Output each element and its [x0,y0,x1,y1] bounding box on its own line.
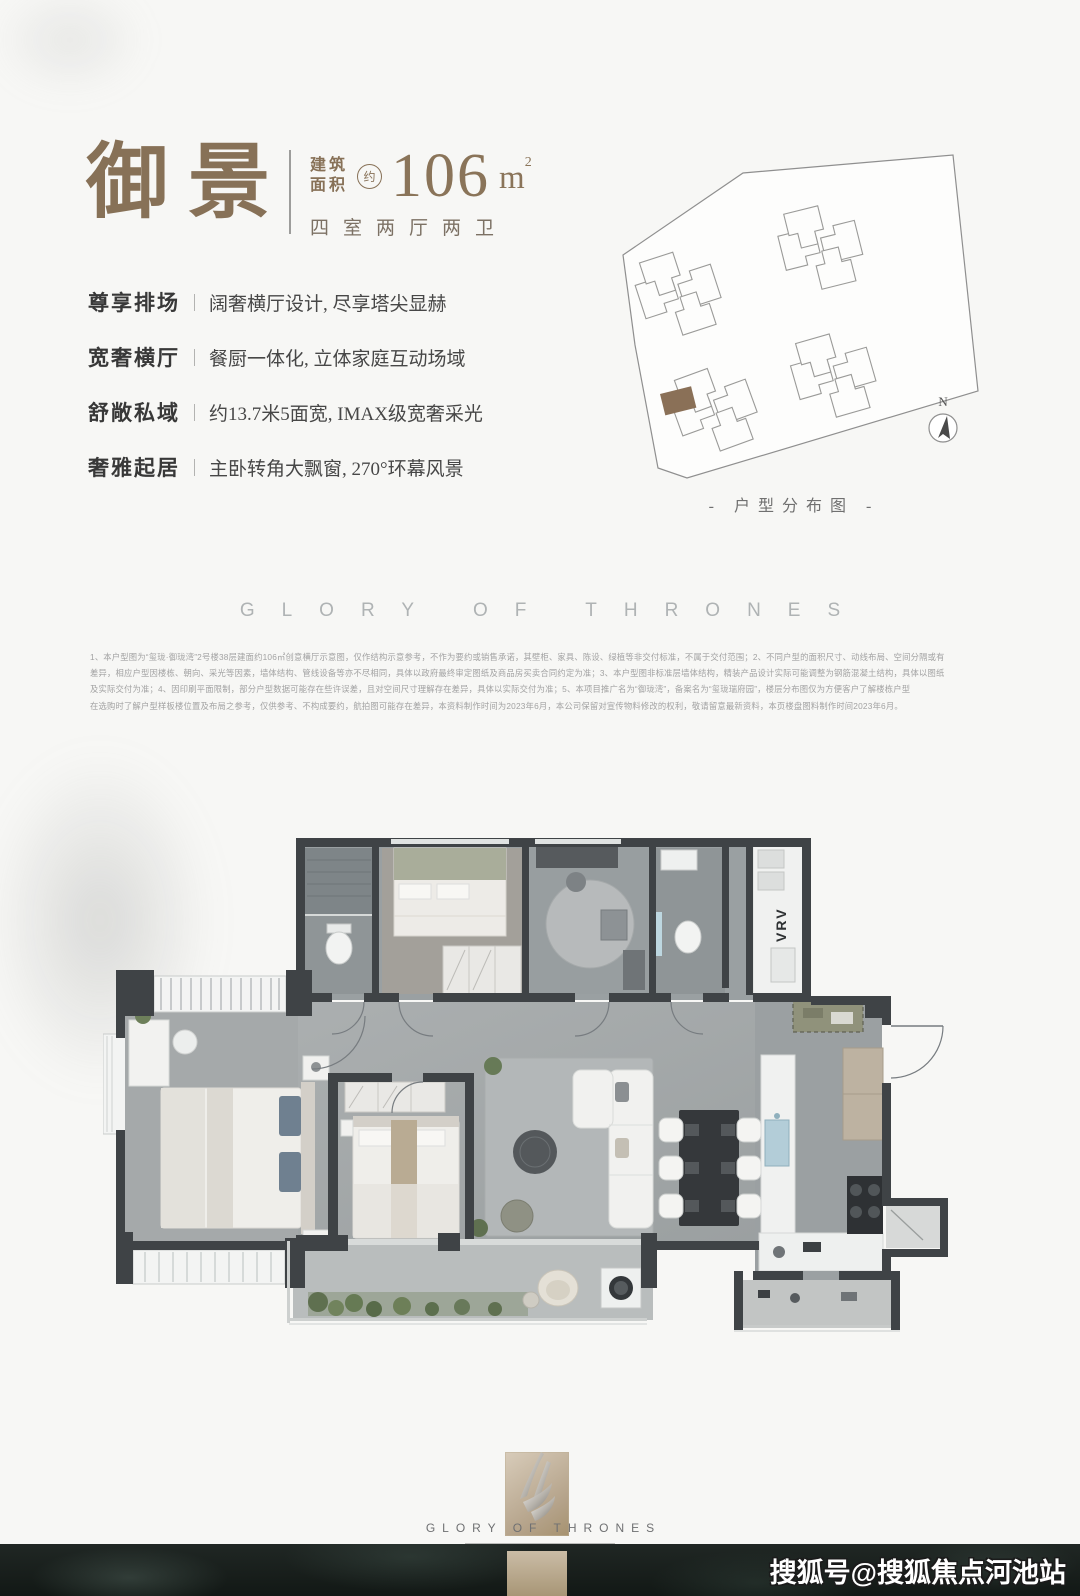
vrv-label: VRV [773,907,789,942]
area-block: 建筑 面积 约 106 m2 四室两厅两卫 [310,150,532,240]
feature-separator [194,404,195,421]
feature-separator [194,294,195,311]
vrv-closet: VRV [753,844,805,994]
site-plan-map: N [598,136,990,492]
disclaimer-line: 及实际交付为准；4、因印刷平面限制，部分户型数据可能存在些许误差，且对空间尺寸理… [90,681,990,697]
bedroom-3 [341,1082,459,1238]
feature-row: 宽奢横厅 餐厨一体化, 立体家庭互动场域 [88,343,568,371]
feature-separator [194,459,195,476]
feature-label: 舒敞私域 [88,397,180,427]
area-value: 106 [391,150,490,203]
title-char: 景 [188,142,270,224]
area-label: 建筑 面积 [310,156,348,196]
feature-desc: 约13.7米5面宽, IMAX级宽奢采光 [209,399,483,426]
brand-emblem-tab [507,1551,567,1596]
feature-row: 奢雅起居 主卧转角大飘窗, 270°环幕风景 [88,453,568,481]
feature-row: 舒敞私域 约13.7米5面宽, IMAX级宽奢采光 [88,398,568,426]
compass-label: N [938,394,948,409]
living-room [470,1057,653,1237]
feature-desc: 餐厨一体化, 立体家庭互动场域 [209,344,466,371]
feature-list: 尊享排场 阔奢横厅设计, 尽享塔尖显赫 宽奢横厅 餐厨一体化, 立体家庭互动场域… [88,288,568,508]
area-unit: m2 [499,155,532,197]
feature-desc: 主卧转角大飘窗, 270°环幕风景 [209,454,464,481]
title-divider [289,150,291,234]
disclaimer-line: 差异，相应户型因楼栋、朝向、采光等因素，墙体结构、管线设备等亦不尽相同，具体以政… [90,665,990,681]
page-title: 御 景 [86,142,270,224]
disclaimer-line: 在选购时了解户型样板楼位置及布局之参考，仅供参考、不构成要约，航拍图可能存在差异… [90,698,990,714]
poster-page: 御 景 建筑 面积 约 106 m2 四室两厅两卫 尊享排场 阔奢横厅设计, 尽… [0,0,1080,1596]
footer-brand-wordmark: GLORY OF THRONES [0,1521,1080,1535]
feature-desc: 阔奢横厅设计, 尽享塔尖显赫 [209,289,447,316]
site-plan-caption: - 户型分布图 - [598,492,990,516]
disclaimer: 1、本户型图为“玺珑·御珑湾”2号楼38层建面约106㎡创意横厅示意图，仅作结构… [90,649,990,714]
feature-label: 尊享排场 [88,287,180,317]
brand-wordmark: GLORY OF THRONES [0,600,1080,622]
feature-separator [194,349,195,366]
layout-summary: 四室两厅两卫 [310,213,532,240]
background-smudge [0,0,180,120]
floor-plan: VRV [103,820,953,1335]
feature-label: 宽奢横厅 [88,342,180,372]
feature-row: 尊享排场 阔奢横厅设计, 尽享塔尖显赫 [88,288,568,316]
title-char: 御 [86,142,168,224]
feature-label: 奢雅起居 [88,452,180,482]
disclaimer-line: 1、本户型图为“玺珑·御珑湾”2号楼38层建面约106㎡创意横厅示意图，仅作结构… [90,649,990,665]
watermark: 搜狐号@搜狐焦点河池站 [770,1551,1066,1590]
dining-area [659,1110,761,1226]
approx-badge: 约 [357,164,382,189]
